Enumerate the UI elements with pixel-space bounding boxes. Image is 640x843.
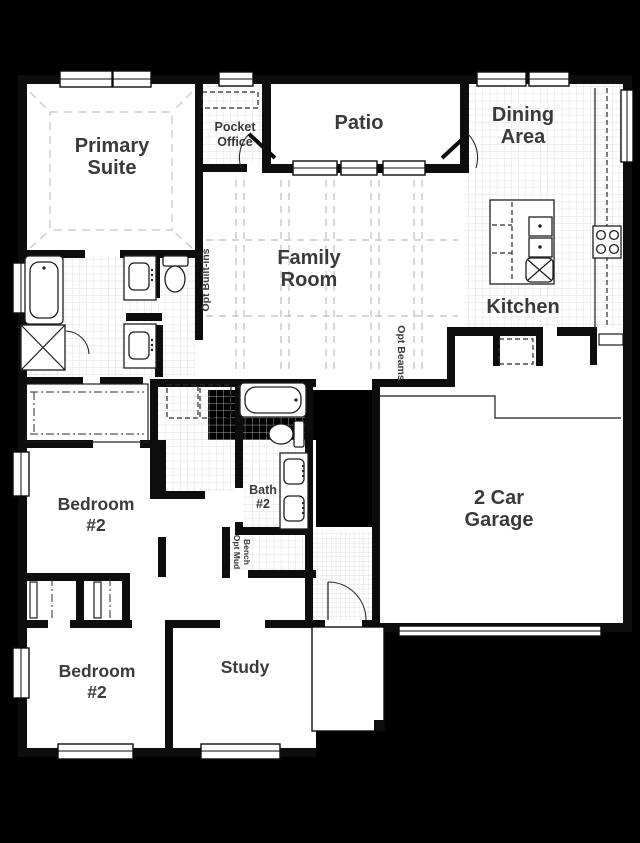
label-pocket-office-line1: Pocket [215, 120, 257, 134]
label-bath2-line2: #2 [256, 497, 270, 511]
window-pocket-office [219, 72, 253, 86]
window-patio-1 [293, 161, 337, 175]
floor-plan-page: Primary Suite Pocket Office Patio Dining… [0, 0, 640, 843]
kitchen-island [490, 200, 554, 284]
label-bedroom2-lower-line1: Bedroom [59, 661, 136, 681]
primary-vanity-2 [124, 324, 156, 368]
window-bedroom2-upper-left [13, 452, 29, 496]
primary-tub [25, 256, 63, 324]
window-study-bottom [201, 744, 280, 759]
window-dining-right [621, 90, 633, 162]
label-study: Study [221, 657, 270, 677]
label-opt-built-ins: Opt Built-ins [200, 248, 212, 311]
label-dining-line2: Area [501, 126, 546, 148]
front-porch [312, 627, 384, 731]
bath2-vanity [280, 453, 308, 529]
floor-plan-drawing: Primary Suite Pocket Office Patio Dining… [0, 0, 640, 843]
label-bedroom2-upper-line2: #2 [86, 515, 106, 535]
laundry-floor [158, 387, 235, 491]
window-patio-3 [383, 161, 425, 175]
label-primary-suite-line1: Primary [75, 135, 150, 157]
label-patio: Patio [335, 112, 384, 134]
bath2-tub [240, 383, 306, 417]
window-patio-2 [341, 161, 377, 175]
label-kitchen: Kitchen [486, 296, 559, 318]
label-family-room-line2: Room [281, 269, 338, 291]
label-opt-beams: Opt Beams [395, 325, 407, 381]
label-garage-line1: 2 Car [474, 487, 524, 509]
window-bedroom2-lower-bottom [58, 744, 133, 759]
cooktop [593, 226, 621, 258]
window-dining-1 [477, 72, 526, 86]
primary-vanity-1 [124, 256, 156, 300]
label-dining-line1: Dining [492, 104, 554, 126]
window-primary-1 [60, 71, 112, 87]
label-family-room-line1: Family [277, 247, 341, 269]
label-garage-line2: Garage [465, 509, 534, 531]
label-bedroom2-lower-line2: #2 [87, 682, 107, 702]
label-primary-suite-line2: Suite [88, 157, 137, 179]
window-bedroom2-lower-left [13, 648, 29, 698]
label-pocket-office-line2: Office [217, 135, 252, 149]
label-bath2-line1: Bath [249, 483, 277, 497]
label-bedroom2-upper-line1: Bedroom [58, 494, 135, 514]
label-opt-mud-bench-line1: Opt Mud [232, 535, 242, 569]
label-opt-mud-bench-line2: Bench [242, 539, 252, 565]
primary-shower [21, 325, 65, 370]
garage-door [399, 626, 601, 636]
window-primary-2 [113, 71, 151, 87]
window-dining-2 [529, 72, 569, 86]
